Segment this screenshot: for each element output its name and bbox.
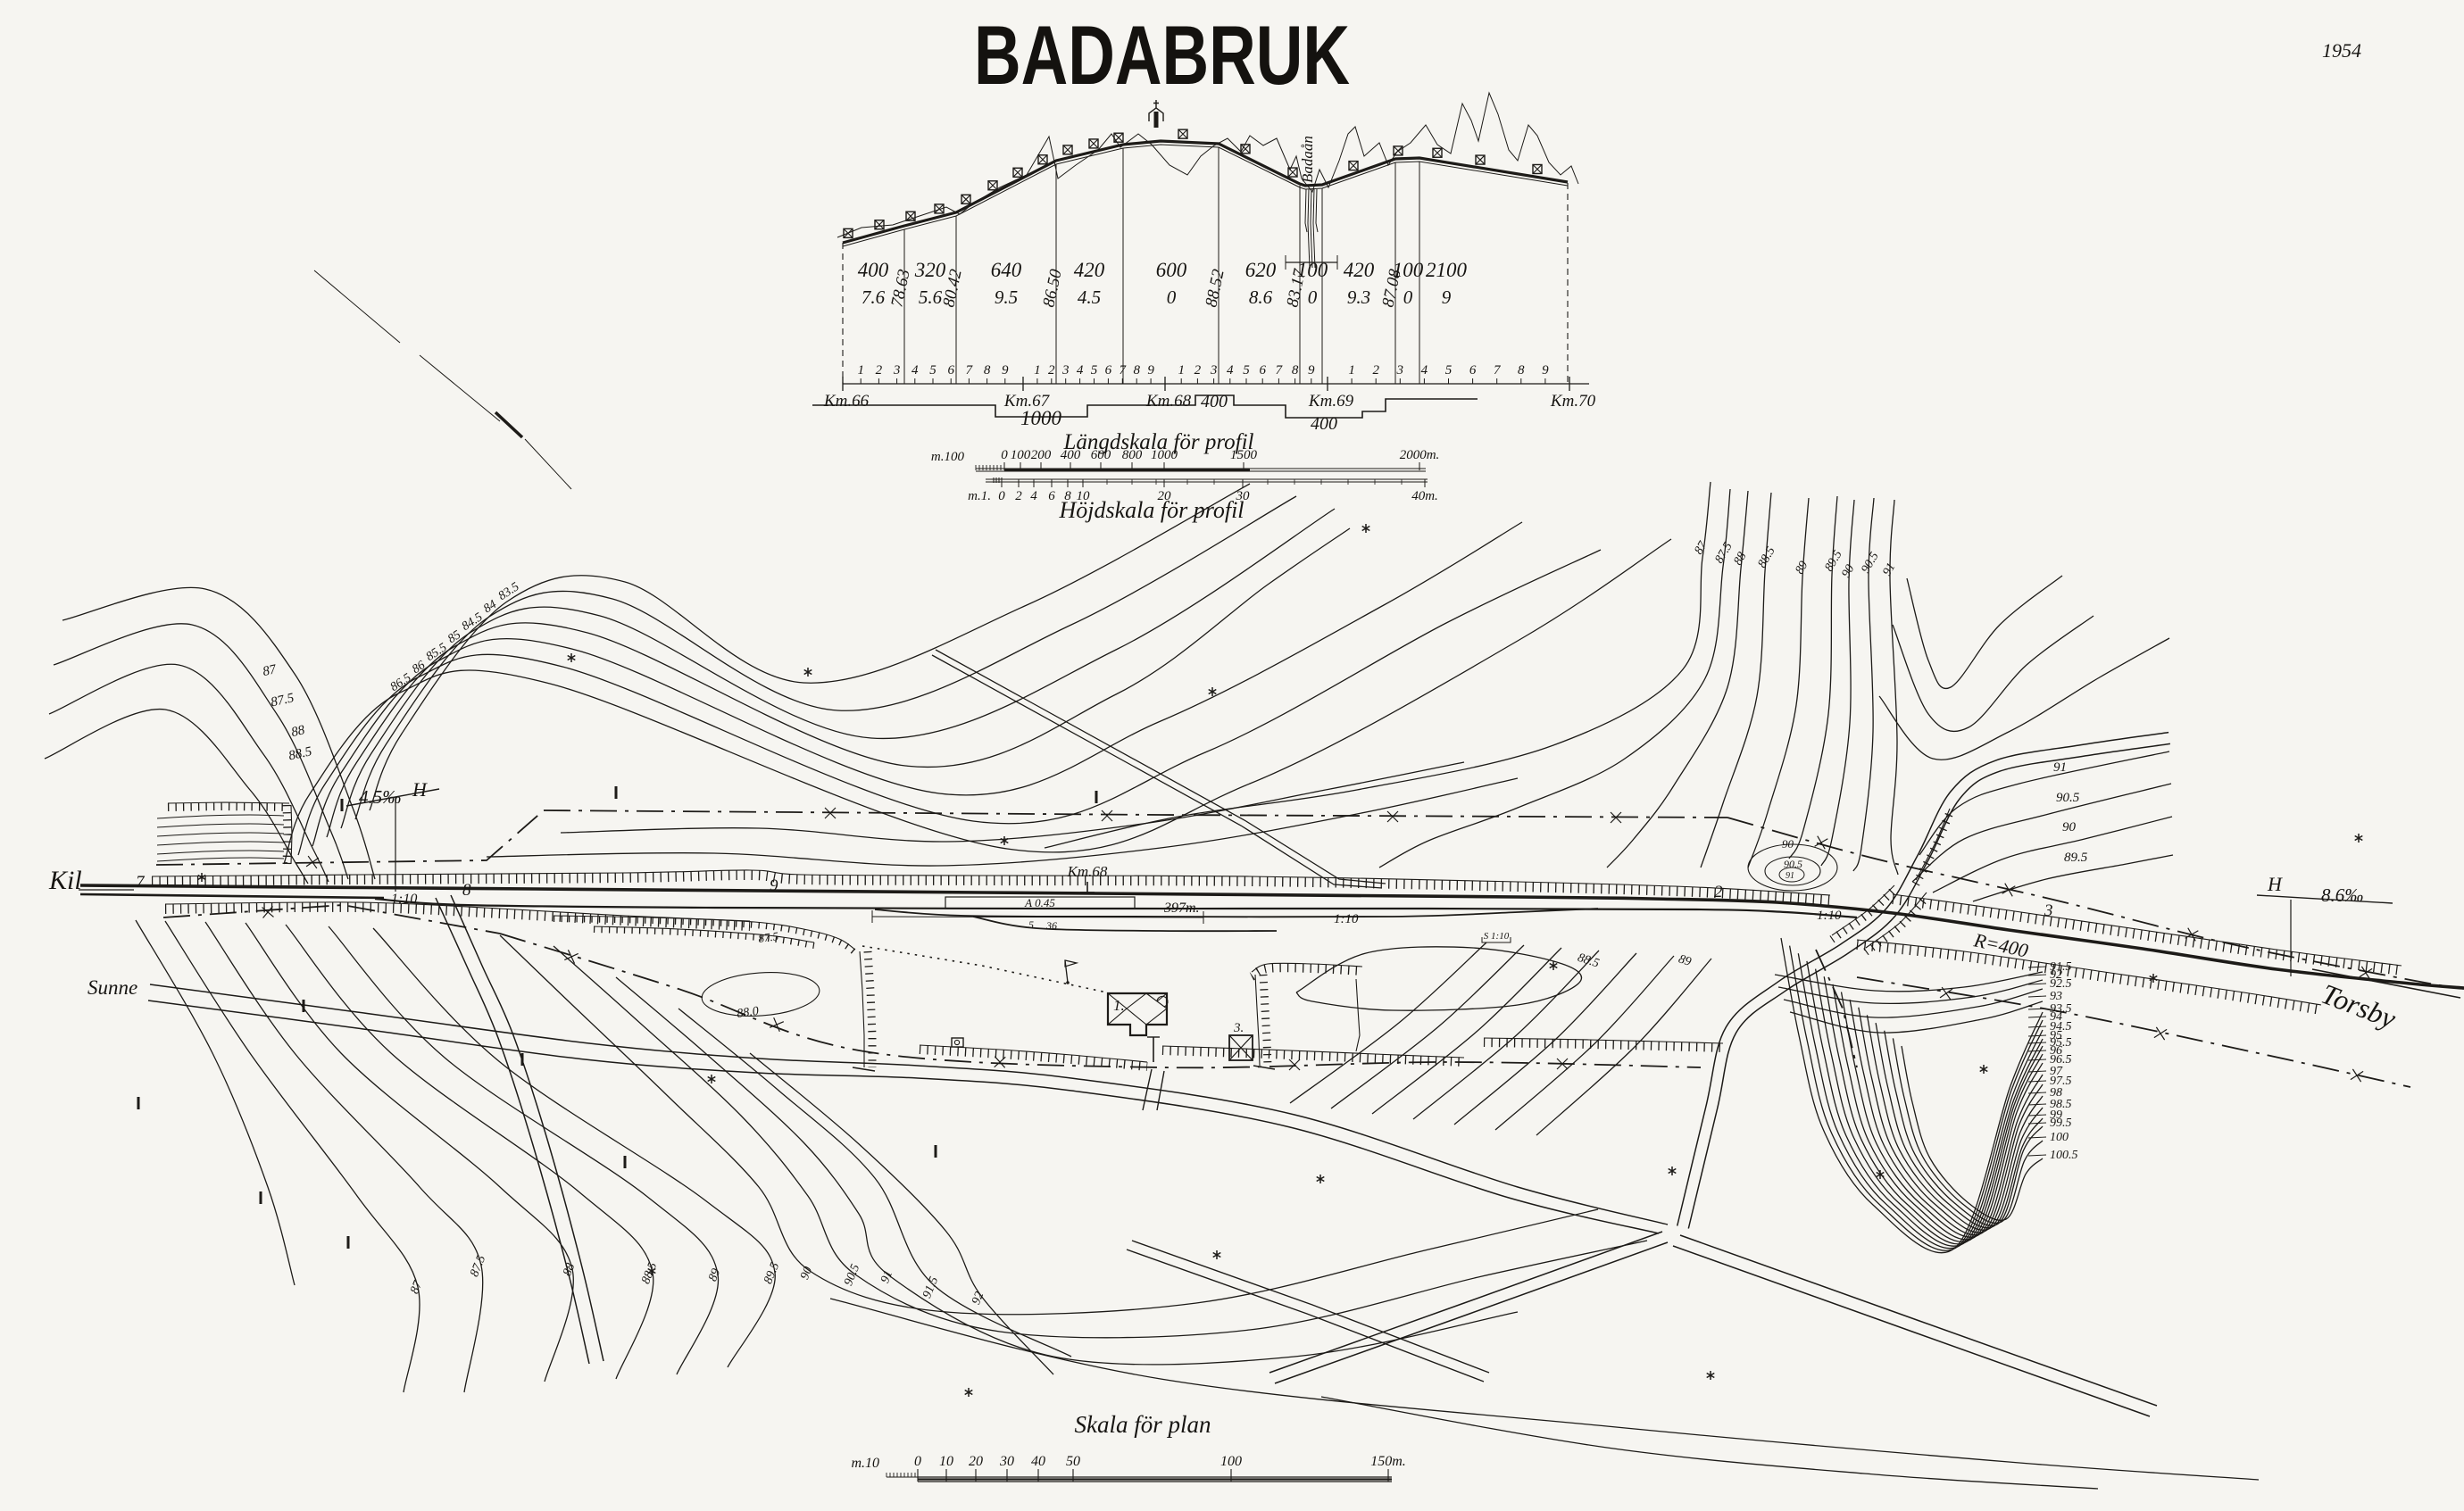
svg-text:8.6: 8.6 (1249, 286, 1273, 308)
svg-text:4: 4 (1227, 363, 1234, 378)
svg-text:6: 6 (1259, 363, 1266, 378)
svg-text:40m.: 40m. (1411, 489, 1438, 503)
svg-text:0: 0 (1308, 286, 1318, 308)
svg-text:0: 0 (1001, 448, 1008, 462)
svg-text:2100: 2100 (1426, 259, 1468, 281)
svg-text:2: 2 (1372, 363, 1379, 378)
svg-text:1:10: 1:10 (1334, 912, 1359, 926)
svg-text:3: 3 (1396, 363, 1404, 378)
svg-text:620: 620 (1245, 259, 1277, 281)
svg-text:640: 640 (991, 259, 1022, 281)
svg-text:89.5: 89.5 (2064, 851, 2088, 865)
svg-text:8: 8 (1133, 363, 1140, 378)
svg-text:320: 320 (914, 259, 946, 281)
svg-text:9: 9 (1002, 363, 1009, 378)
svg-text:9: 9 (1542, 363, 1549, 378)
svg-text:90.5: 90.5 (2056, 791, 2080, 805)
svg-text:1954: 1954 (2322, 39, 2361, 62)
svg-text:6: 6 (1048, 489, 1055, 503)
svg-text:Km.69: Km.69 (1308, 392, 1354, 411)
svg-text:0: 0 (1167, 286, 1177, 308)
svg-text:100.5: 100.5 (2050, 1149, 2078, 1162)
svg-text:1: 1 (1178, 363, 1185, 378)
svg-text:1000: 1000 (1151, 448, 1178, 462)
svg-text:Km.70: Km.70 (1550, 392, 1596, 411)
svg-text:36: 36 (1045, 919, 1057, 932)
svg-text:8: 8 (462, 881, 471, 900)
svg-text:Sunne: Sunne (87, 976, 137, 999)
svg-text:2: 2 (876, 363, 883, 378)
svg-text:1: 1 (1034, 363, 1041, 378)
svg-text:4.5: 4.5 (1078, 286, 1101, 308)
svg-text:4: 4 (1421, 363, 1428, 378)
svg-text:40: 40 (1031, 1454, 1045, 1469)
svg-text:3: 3 (893, 363, 901, 378)
svg-text:397m.: 397m. (1163, 901, 1200, 916)
svg-text:30: 30 (999, 1454, 1014, 1469)
svg-text:4: 4 (1077, 363, 1084, 378)
svg-text:99.5: 99.5 (2050, 1117, 2072, 1130)
svg-text:Km.66: Km.66 (823, 392, 870, 411)
svg-text:600: 600 (1156, 259, 1187, 281)
svg-text:1000: 1000 (1020, 407, 1062, 429)
svg-text:90.5: 90.5 (1784, 858, 1802, 870)
svg-text:2: 2 (1048, 363, 1055, 378)
svg-text:50: 50 (1066, 1454, 1080, 1469)
svg-text:6: 6 (1469, 363, 1477, 378)
svg-text:8.6‰: 8.6‰ (2321, 884, 2363, 906)
svg-text:420: 420 (1074, 259, 1105, 281)
svg-text:1500: 1500 (1230, 448, 1258, 462)
svg-text:5: 5 (929, 363, 936, 378)
svg-text:Km.68: Km.68 (1145, 392, 1192, 411)
svg-text:1: 1 (857, 363, 864, 378)
svg-text:100: 100 (1297, 259, 1328, 281)
svg-text:90: 90 (1782, 837, 1794, 851)
svg-text:Km.68: Km.68 (1067, 863, 1108, 880)
svg-text:400: 400 (1201, 392, 1228, 411)
svg-text:400: 400 (1061, 448, 1081, 462)
svg-text:3.: 3. (1233, 1021, 1244, 1035)
svg-text:7: 7 (136, 873, 146, 892)
svg-text:H: H (2267, 873, 2283, 895)
svg-text:150m.: 150m. (1370, 1454, 1406, 1469)
svg-text:6: 6 (1105, 363, 1112, 378)
svg-text:0: 0 (998, 489, 1005, 503)
svg-text:92.5: 92.5 (2050, 977, 2072, 991)
svg-text:9: 9 (1308, 363, 1315, 378)
svg-text:87.5: 87.5 (757, 929, 779, 945)
svg-text:9: 9 (770, 876, 778, 895)
svg-text:3: 3 (1210, 363, 1218, 378)
svg-text:400: 400 (1311, 414, 1337, 434)
svg-text:5: 5 (1243, 363, 1250, 378)
svg-text:91: 91 (2053, 760, 2067, 775)
svg-text:Skala för plan: Skala för plan (1075, 1411, 1211, 1438)
svg-text:1:10: 1:10 (391, 892, 417, 907)
svg-text:600: 600 (1091, 448, 1111, 462)
svg-text:2: 2 (1195, 363, 1202, 378)
svg-text:H: H (412, 778, 428, 801)
svg-text:9: 9 (1442, 286, 1452, 308)
svg-text:3: 3 (2044, 901, 2053, 920)
svg-text:100: 100 (1011, 448, 1031, 462)
svg-text:8: 8 (1518, 363, 1525, 378)
svg-text:20: 20 (969, 1454, 983, 1469)
svg-text:9.3: 9.3 (1347, 286, 1370, 308)
svg-text:m.100: m.100 (931, 450, 965, 464)
svg-text:9.5: 9.5 (995, 286, 1018, 308)
svg-text:A 0.45: A 0.45 (1024, 896, 1055, 909)
svg-text:100: 100 (1220, 1454, 1242, 1469)
svg-text:100: 100 (1393, 259, 1424, 281)
svg-text:7.6: 7.6 (862, 286, 886, 308)
svg-text:Höjdskala för profil: Höjdskala för profil (1058, 497, 1244, 523)
svg-text:6: 6 (947, 363, 954, 378)
svg-text:1:10: 1:10 (1817, 909, 1842, 923)
svg-text:5: 5 (1091, 363, 1098, 378)
svg-text:Kil: Kil (48, 866, 82, 895)
svg-text:800: 800 (1122, 448, 1143, 462)
svg-text:8: 8 (984, 363, 991, 378)
svg-text:2: 2 (1015, 489, 1022, 503)
svg-text:BADABRUK: BADABRUK (974, 8, 1350, 102)
svg-text:91: 91 (1786, 871, 1794, 881)
svg-text:2: 2 (1714, 883, 1723, 901)
svg-text:2000m.: 2000m. (1400, 448, 1440, 462)
svg-text:m.10: m.10 (851, 1456, 879, 1471)
svg-text:10: 10 (939, 1454, 953, 1469)
svg-text:S 1:10: S 1:10 (1484, 931, 1510, 942)
svg-text:93: 93 (2050, 990, 2062, 1003)
svg-text:5: 5 (1028, 918, 1034, 931)
svg-text:9: 9 (1147, 363, 1154, 378)
svg-text:5: 5 (1445, 363, 1453, 378)
svg-text:1.: 1. (1113, 997, 1125, 1014)
svg-text:8: 8 (1292, 363, 1299, 378)
svg-text:100: 100 (2050, 1131, 2069, 1144)
svg-text:5.6: 5.6 (919, 286, 943, 308)
svg-text:Badaån: Badaån (1299, 136, 1316, 183)
svg-text:420: 420 (1344, 259, 1375, 281)
svg-text:3: 3 (1061, 363, 1070, 378)
svg-text:4: 4 (1030, 489, 1037, 503)
svg-text:0: 0 (914, 1454, 921, 1469)
svg-text:400: 400 (858, 259, 889, 281)
svg-text:200: 200 (1031, 448, 1052, 462)
svg-text:4: 4 (912, 363, 919, 378)
svg-text:0: 0 (1403, 286, 1413, 308)
svg-text:1: 1 (1348, 363, 1355, 378)
svg-text:90: 90 (2062, 820, 2077, 834)
svg-text:m.1.: m.1. (968, 489, 991, 503)
